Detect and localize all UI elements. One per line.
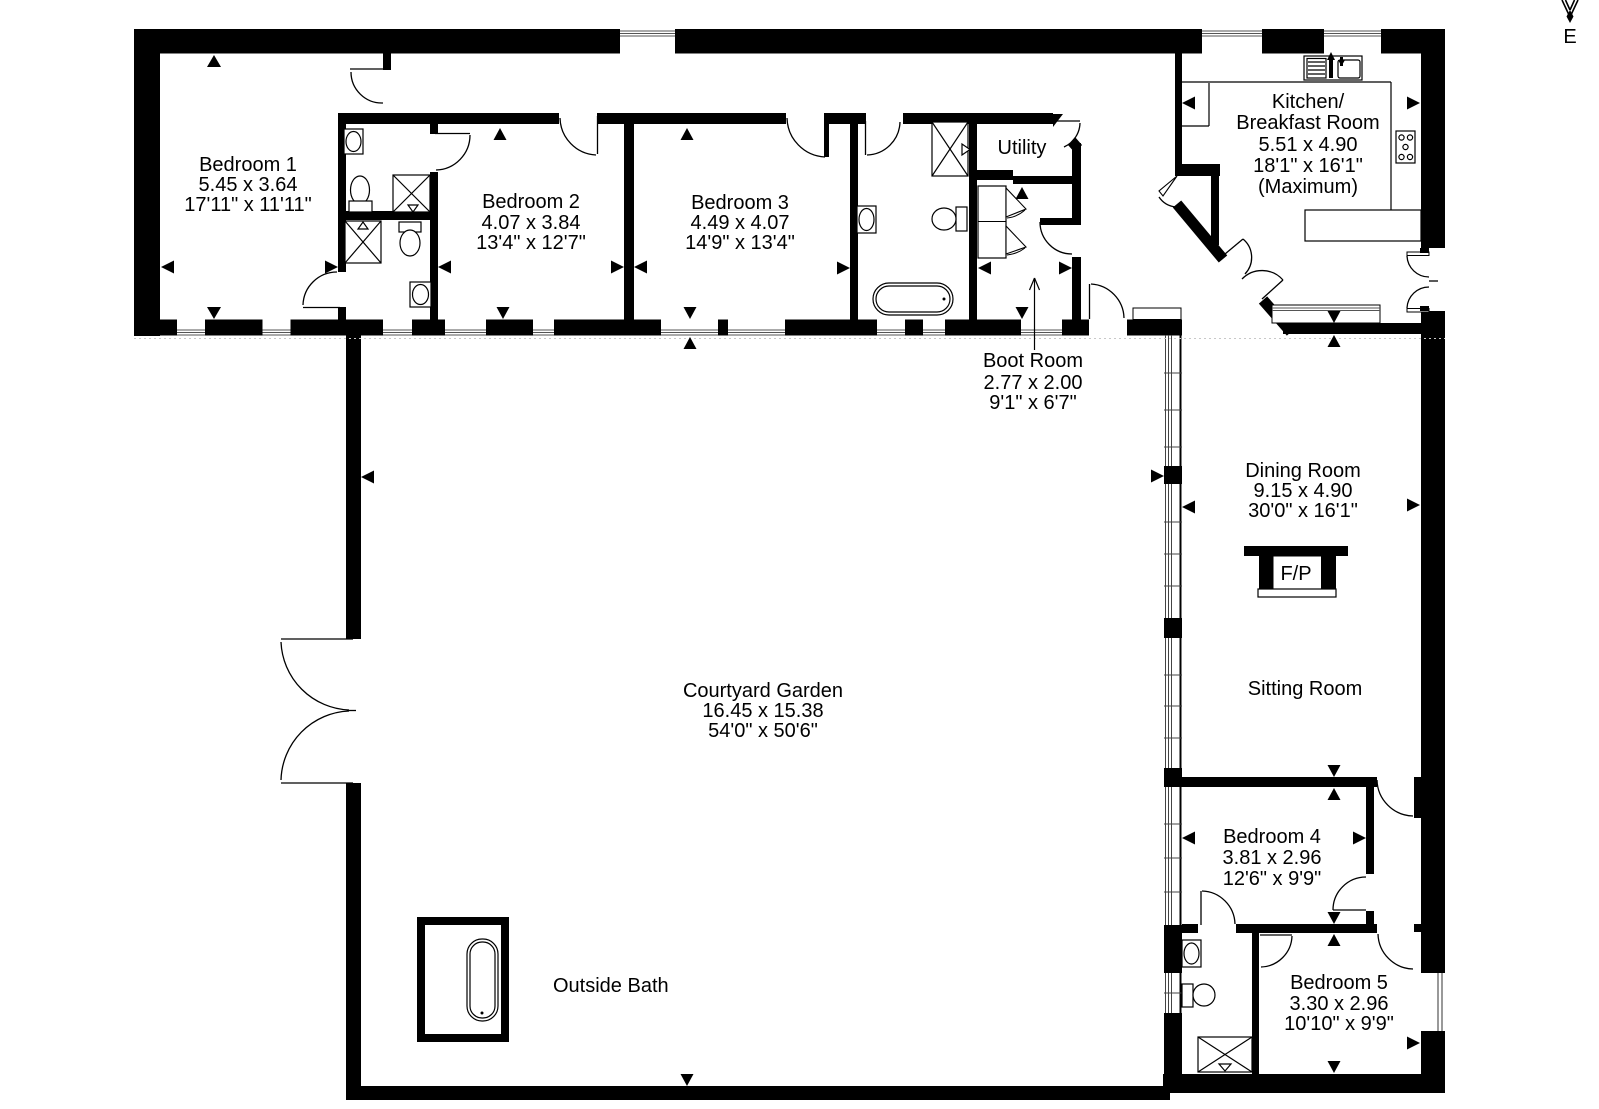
svg-text:13'4" x 12'7": 13'4" x 12'7": [476, 232, 586, 254]
svg-text:12'6" x 9'9": 12'6" x 9'9": [1223, 868, 1322, 890]
svg-text:9'1" x 6'7": 9'1" x 6'7": [989, 392, 1076, 414]
svg-text:Bedroom 2: Bedroom 2: [482, 191, 580, 213]
svg-text:16.45 x 15.38: 16.45 x 15.38: [702, 700, 823, 722]
svg-text:F/P: F/P: [1280, 563, 1311, 585]
svg-text:Dining Room: Dining Room: [1245, 460, 1361, 482]
svg-text:2.77 x 2.00: 2.77 x 2.00: [984, 372, 1083, 394]
svg-text:Outside Bath: Outside Bath: [553, 975, 669, 997]
svg-text:5.45 x 3.64: 5.45 x 3.64: [199, 174, 298, 196]
svg-text:3.30 x 2.96: 3.30 x 2.96: [1290, 993, 1389, 1015]
svg-text:Bedroom 5: Bedroom 5: [1290, 972, 1388, 994]
svg-text:Boot Room: Boot Room: [983, 350, 1083, 372]
svg-text:4.07 x 3.84: 4.07 x 3.84: [482, 212, 581, 234]
svg-text:3.81 x 2.96: 3.81 x 2.96: [1223, 847, 1322, 869]
svg-text:E: E: [1563, 26, 1576, 48]
svg-text:30'0" x 16'1": 30'0" x 16'1": [1248, 500, 1358, 522]
svg-text:9.15 x 4.90: 9.15 x 4.90: [1254, 480, 1353, 502]
svg-text:Breakfast Room: Breakfast Room: [1236, 112, 1379, 134]
svg-text:Sitting Room: Sitting Room: [1248, 678, 1363, 700]
svg-text:Bedroom 3: Bedroom 3: [691, 192, 789, 214]
svg-text:Bedroom 1: Bedroom 1: [199, 154, 297, 176]
svg-text:54'0" x 50'6": 54'0" x 50'6": [708, 720, 818, 742]
svg-text:Utility: Utility: [998, 137, 1047, 159]
svg-text:Courtyard Garden: Courtyard Garden: [683, 680, 843, 702]
svg-text:(Maximum): (Maximum): [1258, 176, 1358, 198]
svg-text:18'1" x 16'1": 18'1" x 16'1": [1253, 155, 1363, 177]
svg-text:4.49 x 4.07: 4.49 x 4.07: [691, 212, 790, 234]
svg-text:Kitchen/: Kitchen/: [1272, 91, 1345, 113]
svg-text:Bedroom 4: Bedroom 4: [1223, 826, 1321, 848]
svg-text:5.51 x 4.90: 5.51 x 4.90: [1259, 134, 1358, 156]
svg-text:17'11" x 11'11": 17'11" x 11'11": [184, 194, 311, 216]
svg-text:10'10" x 9'9": 10'10" x 9'9": [1284, 1013, 1394, 1035]
svg-text:14'9" x 13'4": 14'9" x 13'4": [685, 232, 795, 254]
